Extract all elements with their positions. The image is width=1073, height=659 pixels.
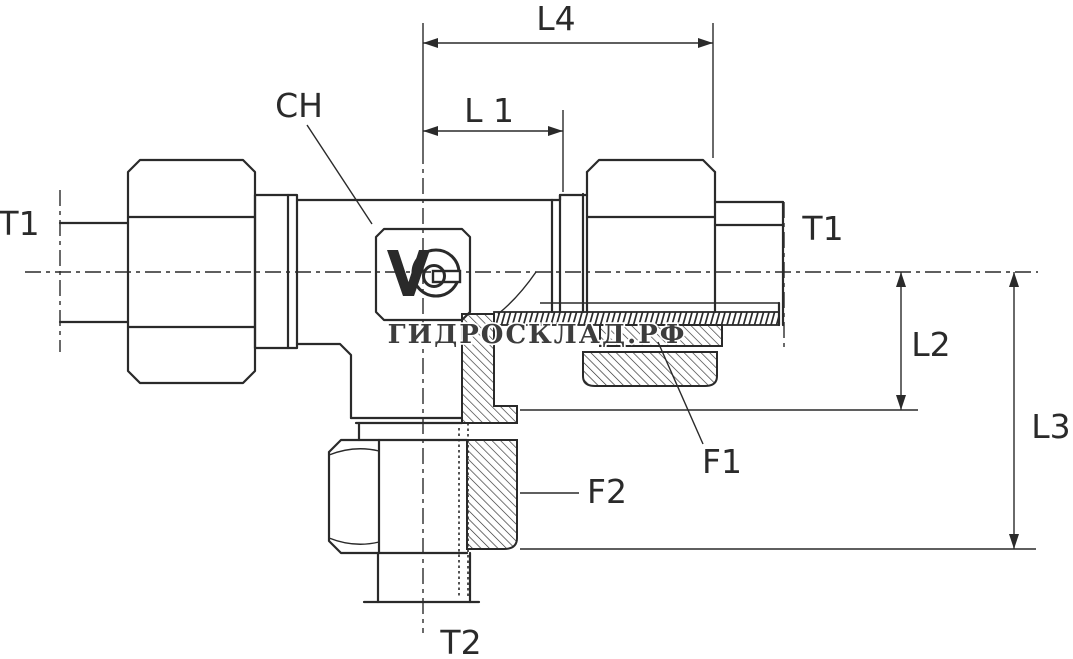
right-port: [552, 160, 783, 325]
l3-label: L3: [1031, 407, 1070, 446]
tee-fitting-drawing: L4 L 1 CH T1 T1 L2 L3 F1: [0, 0, 1073, 659]
logo-bar: [433, 271, 460, 282]
l1-label: L 1: [464, 91, 514, 130]
dimension-l1: L 1: [423, 91, 563, 192]
bottom-port: [329, 418, 479, 602]
l4-label: L4: [536, 0, 575, 38]
body: [297, 200, 552, 418]
f1-label: F1: [702, 442, 742, 481]
watermark-text: ГИДРОСКЛАД.РФ: [388, 320, 687, 350]
section-break-line: [498, 272, 536, 314]
right-collar-top: [552, 195, 587, 200]
t1-right-label: T1: [801, 209, 843, 248]
ch-leader-line: [307, 125, 372, 224]
dimension-t1-right: T1: [801, 209, 843, 248]
right-hex-top: [587, 160, 715, 172]
body-bottom-left-edge: [297, 344, 351, 418]
f2-label: F2: [587, 472, 627, 511]
ch-label: CH: [275, 86, 323, 125]
dimension-ch: CH: [275, 86, 372, 224]
dimension-f2: F2: [520, 472, 627, 511]
technical-drawing-canvas: L4 L 1 CH T1 T1 L2 L3 F1: [0, 0, 1073, 659]
f1-nut-section: [583, 352, 717, 386]
bottom-hex-nut: [329, 440, 467, 553]
l2-label: L2: [911, 325, 950, 364]
dimension-l4: L4: [423, 0, 713, 158]
t1-left-label: T1: [0, 204, 40, 243]
branch-nut-section: [467, 440, 517, 549]
bottom-hex-chamfer-arcs: [329, 449, 379, 545]
dimension-t1-left: T1: [0, 204, 40, 243]
t2-label: T2: [439, 623, 481, 659]
dimension-t2: T2: [439, 623, 481, 659]
centerlines: [25, 148, 1038, 633]
